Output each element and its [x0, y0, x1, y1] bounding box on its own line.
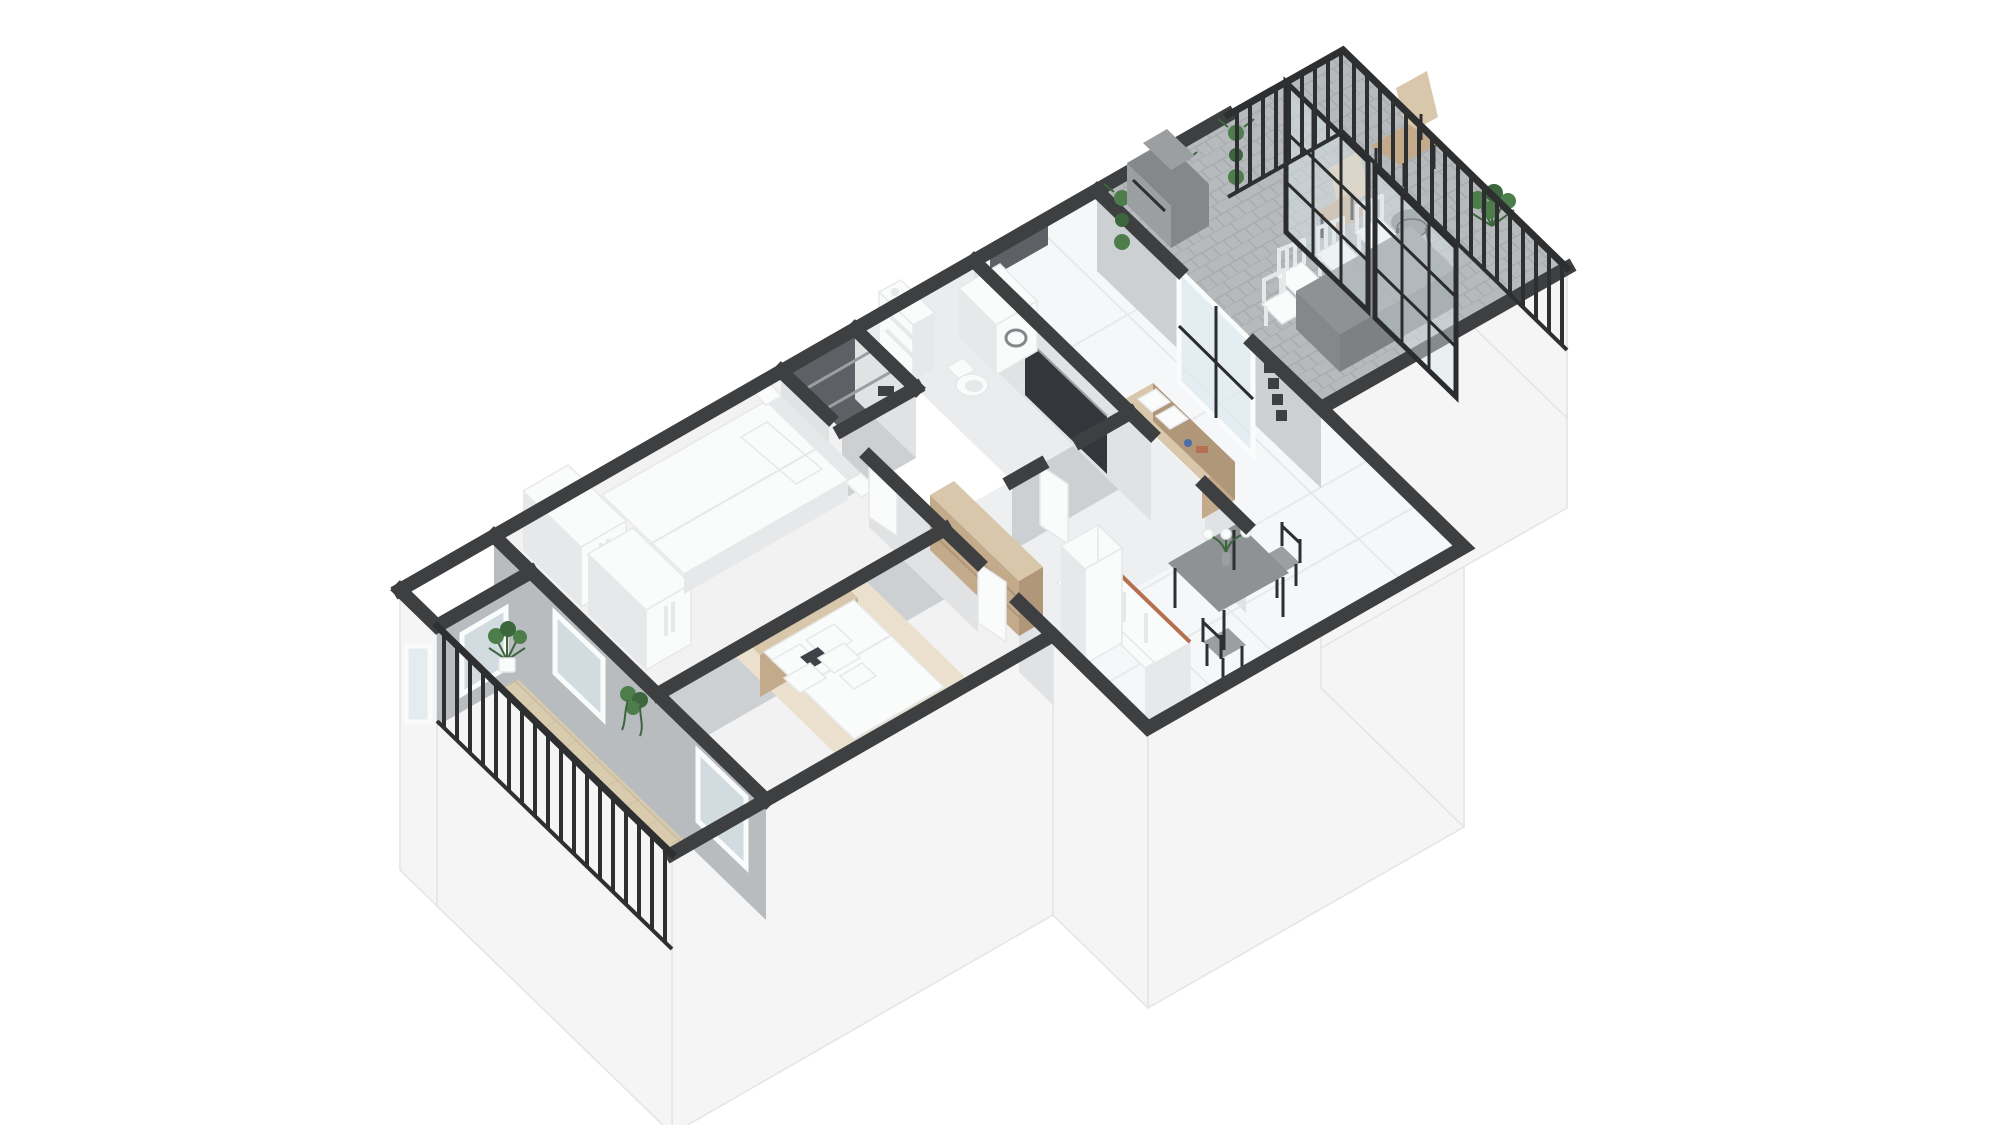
left-facade-window	[406, 646, 430, 722]
floorplan-svg	[0, 0, 2000, 1125]
console-decor	[1196, 446, 1208, 453]
exterior-face-left-stub	[400, 590, 437, 906]
floorplan-canvas	[0, 0, 2000, 1125]
